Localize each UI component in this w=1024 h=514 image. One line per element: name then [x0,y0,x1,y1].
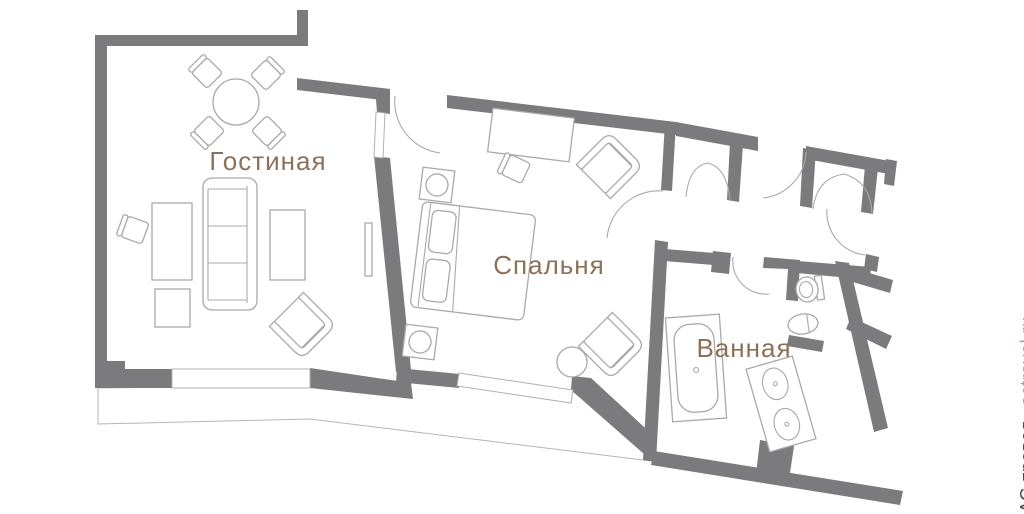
living-room-furniture [116,54,372,359]
bedroom-label: Спальня [493,250,604,280]
bedroom-furniture [402,108,645,379]
sidelight-window [374,112,385,158]
living-room-window [172,369,310,388]
entrance-door-arc [763,152,806,198]
nightstand-icon [419,167,455,203]
bedroom-desk-icon [488,108,575,162]
watermark-site-url: actravel.ru [1017,316,1024,406]
bidet-icon [787,312,819,336]
writing-desk-icon [152,203,192,280]
floor-plan-drawing: Гостиная Спальня Ванная [0,0,1024,514]
nightstand-icon [402,324,438,360]
round-table-icon [557,347,587,377]
armchair-icon [576,132,642,198]
double-sink-vanity-icon [746,356,816,452]
side-table-icon [155,289,190,327]
console-table-icon [270,210,305,280]
radiator-icon [365,223,372,276]
living-room-label: Гостиная [209,146,326,176]
dining-table-icon [213,79,259,125]
floor-plan: Гостиная Спальня Ванная АС-тревел·actrav… [0,0,1024,514]
armchair-icon [269,292,335,358]
bathroom-label: Ванная [696,333,791,363]
dining-chair-icon [251,115,286,150]
bedroom-top-door-arc [395,96,440,153]
dining-chair-icon [190,115,225,150]
watermark-company: АС-тревел [1017,420,1024,513]
closet-bifold-door-left [686,163,730,200]
bathroom-fixtures [665,275,824,452]
corridor-door-arc [827,209,865,255]
dining-chair-icon [188,54,223,89]
watermark-separator: · [1017,406,1024,421]
bathtub-icon [665,314,726,422]
bedroom-hall-door-arc [607,191,663,238]
watermark: АС-тревел·actravel.ru [1017,316,1024,513]
sofa-icon [203,178,257,310]
dining-chair-icon [250,56,285,91]
armchair-icon [578,312,644,378]
desk-chair-icon [116,214,149,244]
